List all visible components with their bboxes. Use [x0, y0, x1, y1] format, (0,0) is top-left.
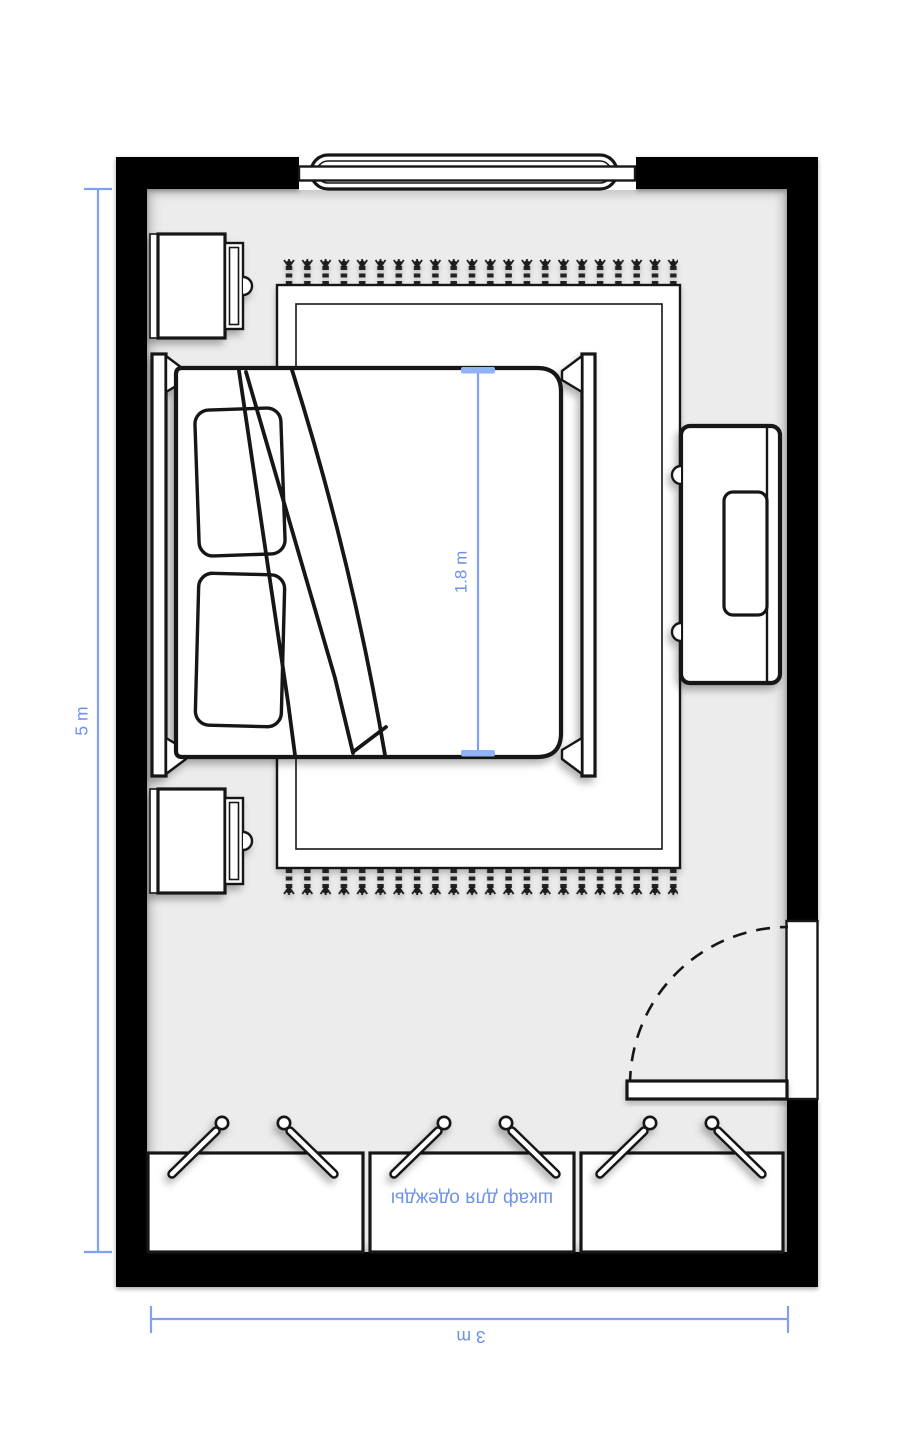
dresser-knob-bottom [672, 623, 681, 641]
wall-top-right [636, 157, 787, 189]
window-glass [299, 167, 635, 181]
floor-plan: 5 m 1.8 m 3 m шкаф для одежды [0, 0, 910, 1454]
wall-bottom [147, 1252, 787, 1287]
nightstand-top-drawer [225, 243, 243, 329]
bed-dim-tick-bottom [461, 750, 495, 757]
bed [152, 354, 595, 776]
floor-plan-canvas [0, 0, 910, 1454]
window [299, 155, 636, 190]
dresser [672, 426, 780, 683]
door-frame [787, 921, 818, 1099]
dresser-knob-top [672, 466, 681, 484]
door-leaf [627, 1081, 787, 1099]
nightstand-top-body [158, 234, 225, 338]
wardrobe-label: шкаф для одежды [391, 1189, 553, 1208]
nightstand-bottom-body [158, 789, 225, 893]
bed-width-dimension-label: 1.8 m [453, 551, 470, 594]
wall-top-left [147, 157, 299, 189]
dresser-body [681, 426, 780, 683]
rug-fringe-top [280, 258, 678, 285]
nightstand-bottom-drawer [225, 798, 243, 884]
bed-dim-tick-top [461, 367, 495, 374]
nightstand-bottom-knob [243, 832, 252, 850]
bed-footboard [582, 354, 595, 776]
wall-right-lower [787, 1099, 818, 1287]
nightstand-bottom [150, 789, 252, 893]
room-height-dimension-label: 5 m [73, 706, 91, 735]
bed-mattress [176, 368, 561, 757]
rug-fringe-bottom [280, 868, 678, 896]
wall-left [116, 157, 147, 1287]
room-width-dimension-label: 3 m [456, 1327, 485, 1345]
nightstand-top [150, 234, 252, 338]
wall-right-upper [787, 157, 818, 921]
bed-headboard [152, 354, 166, 776]
nightstand-top-knob [243, 277, 252, 295]
